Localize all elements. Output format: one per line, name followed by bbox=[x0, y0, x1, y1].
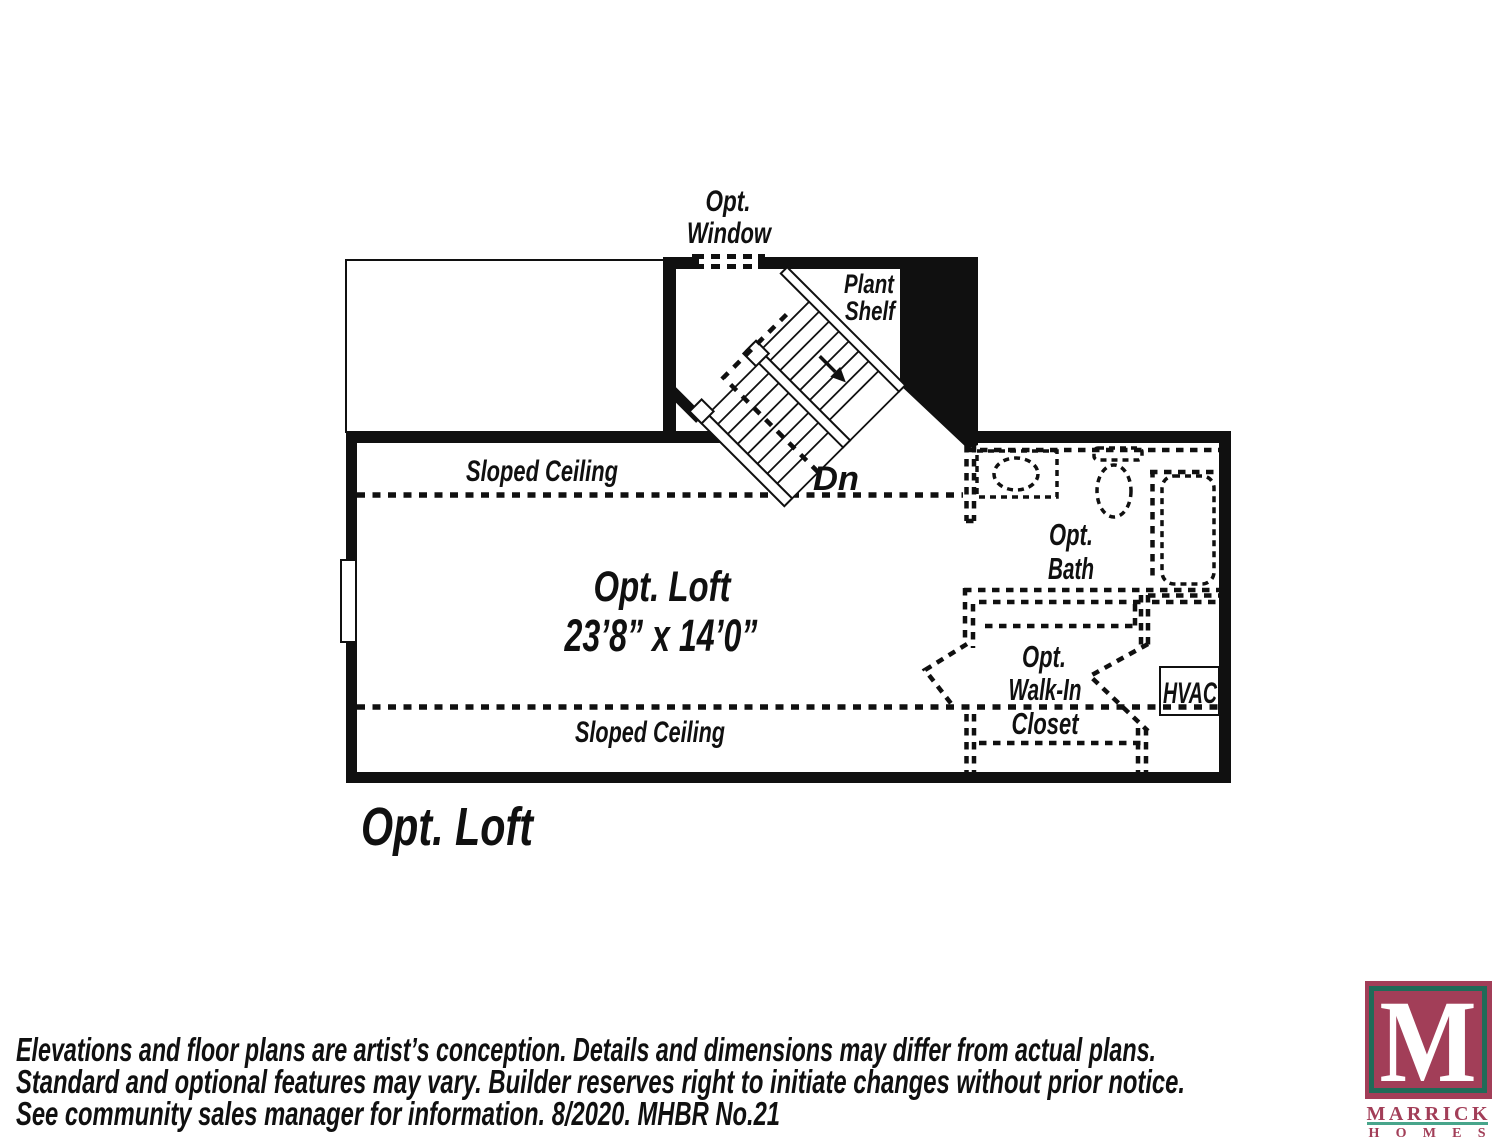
svg-text:Walk-In: Walk-In bbox=[1009, 672, 1082, 707]
svg-text:Sloped Ceiling: Sloped Ceiling bbox=[466, 455, 618, 488]
svg-text:Opt. Loft: Opt. Loft bbox=[594, 563, 732, 611]
svg-text:Dn: Dn bbox=[813, 460, 859, 498]
svg-text:Opt. Loft: Opt. Loft bbox=[361, 797, 535, 857]
svg-text:Bath: Bath bbox=[1048, 551, 1094, 586]
svg-text:Shelf: Shelf bbox=[845, 296, 897, 326]
svg-text:Opt.: Opt. bbox=[706, 185, 751, 218]
svg-text:See community sales manager fo: See community sales manager for informat… bbox=[16, 1095, 780, 1132]
svg-text:Window: Window bbox=[687, 217, 772, 250]
svg-text:Sloped Ceiling: Sloped Ceiling bbox=[575, 716, 725, 749]
svg-text:23’8” x 14’0”: 23’8” x 14’0” bbox=[564, 610, 758, 661]
svg-text:Closet: Closet bbox=[1012, 706, 1080, 741]
svg-text:HVAC: HVAC bbox=[1163, 677, 1218, 710]
svg-text:Opt.: Opt. bbox=[1022, 639, 1066, 674]
svg-text:Opt.: Opt. bbox=[1049, 517, 1093, 552]
svg-text:Plant: Plant bbox=[844, 269, 895, 299]
svg-text:M: M bbox=[1380, 976, 1477, 1107]
